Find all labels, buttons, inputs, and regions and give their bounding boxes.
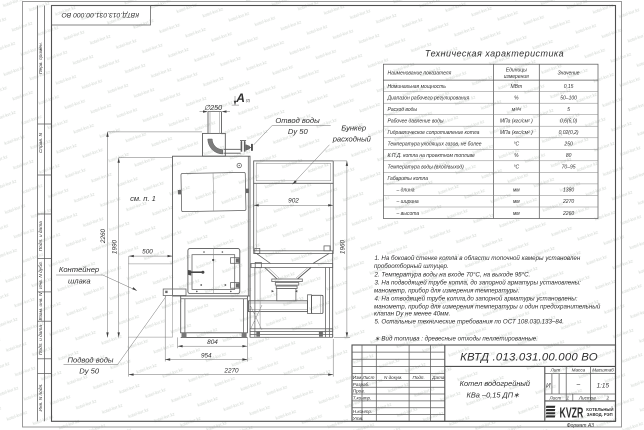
svg-text:Контейнер: Контейнер <box>59 265 99 274</box>
svg-text:Инв. N дубл.: Инв. N дубл. <box>38 261 44 289</box>
svg-text:Единицы: Единицы <box>506 68 527 74</box>
svg-text:Наименование показателя: Наименование показателя <box>388 71 452 77</box>
svg-text:Утв.: Утв. <box>353 416 363 421</box>
svg-text:Dy 50: Dy 50 <box>288 127 309 136</box>
svg-text:Изм.Лист: Изм.Лист <box>353 375 375 380</box>
svg-text:измерения: измерения <box>504 74 529 80</box>
svg-text:Габариты котла: Габариты котла <box>388 176 429 182</box>
svg-text:2270: 2270 <box>562 199 574 205</box>
svg-text:2: 2 <box>606 396 610 401</box>
svg-text:МПа (кгс/см² ): МПа (кгс/см² ) <box>500 119 533 125</box>
svg-text:%: % <box>514 153 519 159</box>
svg-text:Инв. N подл.: Инв. N подл. <box>38 383 44 411</box>
svg-text:Формат А3: Формат А3 <box>567 423 595 429</box>
svg-text:Справ. N: Справ. N <box>38 132 44 153</box>
svg-text:Т.контр.: Т.контр. <box>353 396 372 401</box>
svg-text:Лит: Лит <box>550 368 561 373</box>
svg-text:954: 954 <box>201 352 212 359</box>
svg-text:KVZR: KVZR <box>560 405 584 421</box>
svg-text:Подп.: Подп. <box>413 375 425 380</box>
svg-text:Дата: Дата <box>431 375 445 380</box>
svg-text:Разраб.: Разраб. <box>353 382 370 387</box>
svg-text:Листов: Листов <box>578 396 596 401</box>
svg-text:шлака: шлака <box>68 277 91 286</box>
svg-text:– высота: – высота <box>396 211 420 217</box>
svg-text:мм: мм <box>513 188 520 194</box>
svg-text:Температура уходящих газов, не: Температура уходящих газов, не более <box>388 142 482 148</box>
svg-text:Рабочее давление воды: Рабочее давление воды <box>388 119 444 125</box>
svg-text:1960: 1960 <box>339 239 346 254</box>
svg-text:5: 5 <box>567 107 570 113</box>
svg-text:%: % <box>514 95 519 101</box>
svg-text:80: 80 <box>566 153 572 159</box>
svg-text:манометр, прибор для измерени: манометр, прибор для измерения температу… <box>374 303 601 310</box>
svg-text:КВТД .013.031.00.000 ВО: КВТД .013.031.00.000 ВО <box>460 351 598 363</box>
svg-text:Номинальная мощность: Номинальная мощность <box>388 84 447 90</box>
svg-text:Отвод воды: Отвод воды <box>275 116 320 125</box>
svg-text:∅250: ∅250 <box>204 103 222 112</box>
svg-text:70–95: 70–95 <box>562 165 576 171</box>
svg-text:Гидравлическое сопротивление к: Гидравлическое сопротивление котла <box>388 130 480 136</box>
svg-text:Перв. примен.: Перв. примен. <box>38 42 44 74</box>
svg-text:Расход воды: Расход воды <box>388 107 418 113</box>
svg-text:°С: °С <box>513 165 519 171</box>
svg-text:1:15: 1:15 <box>597 383 610 390</box>
svg-text:1990: 1990 <box>111 239 118 254</box>
svg-text:Подп. и дата: Подп. и дата <box>38 325 44 355</box>
svg-text:Диапазон рабочего регулировани: Диапазон рабочего регулирования <box>387 95 470 101</box>
svg-text:Dy 50: Dy 50 <box>79 366 100 375</box>
svg-text:4. На отводящей трубе котла,д: 4. На отводящей трубе котла,до запорной … <box>375 295 578 302</box>
svg-text:250: 250 <box>563 142 573 148</box>
svg-text:м³/ч: м³/ч <box>512 107 521 113</box>
svg-text:Подп. и дата: Подп. и дата <box>38 221 44 251</box>
svg-text:50–100: 50–100 <box>560 95 577 101</box>
svg-text:Котел водогрейный: Котел водогрейный <box>460 379 530 388</box>
svg-text:Бункер: Бункер <box>341 124 366 133</box>
svg-text:500: 500 <box>142 248 153 255</box>
svg-text:0,15: 0,15 <box>564 84 574 90</box>
svg-text:∗ Вид топлива : древесные от: ∗ Вид топлива : древесные отходы пеллети… <box>375 335 538 342</box>
svg-text:клапан Dу не менее 40мм.: клапан Dу не менее 40мм. <box>374 311 450 318</box>
svg-text:см. п. 1: см. п. 1 <box>130 194 156 203</box>
svg-text:Масштаб: Масштаб <box>592 368 614 373</box>
svg-text:пробоотборный штуцер.: пробоотборный штуцер. <box>374 263 449 270</box>
svg-text:0,6(6,0): 0,6(6,0) <box>560 119 578 125</box>
svg-text:К.П.Д. котла на проектном топл: К.П.Д. котла на проектном топливе <box>388 153 476 159</box>
svg-text:Взам. инв. N: Взам. инв. N <box>38 292 44 320</box>
svg-text:1. На боковой стенке котла в: 1. На боковой стенке котла в области топ… <box>375 255 581 262</box>
svg-text:Температура воды (вход/выход): Температура воды (вход/выход) <box>388 165 465 171</box>
svg-text:2260: 2260 <box>562 211 574 217</box>
svg-text:0,02(0,2): 0,02(0,2) <box>559 130 579 136</box>
svg-text:мм: мм <box>513 211 520 217</box>
svg-text:804: 804 <box>207 339 218 346</box>
svg-text:Подвод воды: Подвод воды <box>67 355 113 364</box>
svg-text:КВТД.013.031.00.000 ВО: КВТД.013.031.00.000 ВО <box>61 11 139 18</box>
svg-text:1380: 1380 <box>563 188 574 194</box>
svg-text:N докум.: N докум. <box>384 375 403 380</box>
svg-text:МПа (кгс/см² ): МПа (кгс/см² ) <box>500 130 533 136</box>
svg-text:°С: °С <box>513 142 519 148</box>
svg-text:ЗАВОД. РЭП: ЗАВОД. РЭП <box>587 412 613 417</box>
svg-text:2260: 2260 <box>100 228 107 244</box>
svg-text:Техническая характеристика: Техническая характеристика <box>425 49 564 59</box>
svg-text:3. На подводящей трубе котла,: 3. На подводящей трубе котла, до запорно… <box>375 279 582 286</box>
svg-text:Масса: Масса <box>572 368 586 373</box>
svg-text:5. Остальные технические треб: 5. Остальные технические требования по О… <box>375 319 564 326</box>
svg-text:манометр, прибор для измерени: манометр, прибор для измерения температу… <box>374 287 519 294</box>
svg-text:902: 902 <box>288 198 299 205</box>
svg-text:А: А <box>235 91 245 105</box>
svg-text:(2): (2) <box>246 99 250 103</box>
svg-text:1: 1 <box>567 396 570 401</box>
svg-text:Значение: Значение <box>558 71 580 77</box>
svg-text:Лист: Лист <box>549 396 562 401</box>
svg-text:расходный: расходный <box>332 134 372 143</box>
svg-text:МВт: МВт <box>510 84 522 90</box>
svg-text:– длина: – длина <box>396 188 415 194</box>
svg-text:2. Температура воды на входе: 2. Температура воды на входе 70°С, на вы… <box>374 271 531 278</box>
svg-text:мм: мм <box>513 199 520 205</box>
svg-text:2270: 2270 <box>223 367 239 374</box>
svg-text:КВа –0,15 ДП∗: КВа –0,15 ДП∗ <box>467 391 521 400</box>
svg-text:– ширина: – ширина <box>396 199 419 205</box>
svg-text:И: И <box>546 383 551 390</box>
svg-text:Н.контр.: Н.контр. <box>353 409 372 414</box>
svg-text:Пров.: Пров. <box>353 389 365 394</box>
svg-text:–: – <box>576 382 581 389</box>
